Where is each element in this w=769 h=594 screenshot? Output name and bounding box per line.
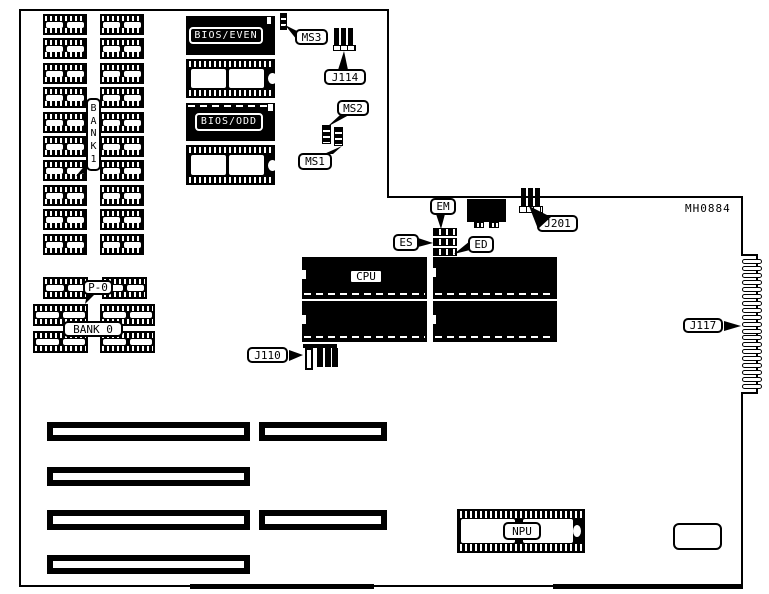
cpu-block-notch	[433, 268, 436, 277]
j114-pin	[334, 28, 339, 45]
chip-pins-top	[45, 114, 85, 119]
memory-chip	[100, 87, 144, 108]
memory-chip	[100, 185, 144, 206]
chip-pins-bottom	[102, 101, 142, 106]
chip-pins-top	[45, 279, 86, 284]
chip-window	[46, 285, 64, 291]
chip-pins-top	[102, 89, 142, 94]
expansion-slot	[259, 422, 387, 441]
chip-pins-top	[102, 16, 142, 21]
memory-chip	[100, 14, 144, 35]
chip-pins-top	[102, 138, 142, 143]
chip-window	[46, 22, 63, 28]
edge-connector-finger	[742, 273, 762, 278]
chip-window	[46, 193, 63, 199]
socket-pins-bottom	[189, 177, 272, 183]
memory-chip	[100, 63, 144, 84]
bottom-edge-thick-right	[553, 584, 743, 589]
edge-connector-finger	[742, 315, 762, 320]
j114-pin	[341, 28, 346, 45]
memory-chip	[100, 38, 144, 59]
chip-window	[46, 120, 63, 126]
bios-even-chip: BIOS/EVEN	[186, 16, 275, 55]
memory-chip	[43, 112, 87, 133]
chip-pins-top	[102, 40, 142, 45]
chip-index-mark	[267, 17, 271, 24]
memory-chip	[100, 160, 144, 181]
memory-chip	[43, 14, 87, 35]
bank1-letter: K	[90, 142, 96, 152]
chip-window	[63, 339, 86, 345]
chip-window	[124, 144, 141, 150]
chip-pins-top	[102, 162, 142, 167]
socket-pins-top	[460, 511, 582, 518]
chip-pins-bottom	[102, 174, 142, 179]
edge-connector-finger	[742, 301, 762, 306]
cpu-block-dashes	[435, 293, 555, 295]
chip-window	[46, 46, 63, 52]
chip-window	[46, 168, 63, 174]
memory-chip	[43, 38, 87, 59]
socket-pins-top	[189, 147, 272, 153]
chip-pins-bottom	[45, 174, 85, 179]
j110-pin	[332, 348, 338, 367]
j201-pin	[528, 188, 533, 206]
j110-callout: J110	[247, 347, 288, 363]
cpu-block-dashes	[304, 336, 425, 338]
edge-connector-finger	[742, 322, 762, 327]
memory-chip	[43, 160, 87, 181]
chip-window	[36, 339, 59, 345]
chip-pins-bottom	[45, 199, 85, 204]
bios-odd-label: BIOS/ODD	[195, 113, 263, 131]
chip-pins-bottom	[45, 223, 85, 228]
j110-pin	[325, 348, 331, 367]
edge-connector-finger	[742, 280, 762, 285]
em-jumper-row	[433, 248, 457, 256]
cpu-block-notch	[302, 315, 306, 324]
chip-pins-top	[102, 211, 142, 216]
chip-pins-top	[45, 187, 85, 192]
cpu-block-dashes	[435, 336, 555, 338]
chip-pins-top	[102, 187, 142, 192]
chip-index-mark	[268, 104, 273, 111]
socket-window	[191, 155, 226, 175]
expansion-slot	[47, 422, 250, 441]
edge-connector-finger	[742, 308, 762, 313]
motherboard-diagram: BIOS/EVEN BIOS/ODD MS3 J114 MS2 MS1 BANK…	[0, 0, 769, 594]
ms2-jumper-block	[322, 125, 331, 144]
chip-window	[103, 217, 120, 223]
power-connector-foot	[489, 222, 499, 228]
chip-window	[67, 71, 84, 77]
bottom-edge-thick-left	[190, 584, 374, 589]
chip-pins-top	[45, 89, 85, 94]
edge-connector-finger	[742, 363, 762, 368]
edge-connector-finger	[742, 287, 762, 292]
memory-chip	[100, 209, 144, 230]
chip-window	[124, 217, 141, 223]
chip-window	[103, 312, 126, 318]
memory-chip	[43, 136, 87, 157]
p0-callout: P-0	[83, 280, 113, 295]
memory-chip	[100, 234, 144, 255]
cpu-block-notch	[433, 315, 436, 324]
chip-window	[46, 71, 63, 77]
bank1-letter: B	[90, 104, 96, 114]
chip-pins-top	[102, 306, 153, 311]
chip-pins-bottom	[45, 52, 85, 57]
cpu-block-dashes	[304, 293, 425, 295]
chip-window	[67, 168, 84, 174]
chip-window	[130, 339, 153, 345]
chip-window	[124, 95, 141, 101]
chip-window	[67, 95, 84, 101]
chip-window	[124, 168, 141, 174]
chip-pins-bottom	[102, 126, 142, 131]
socket-pins-top	[189, 61, 272, 67]
socket-notch	[268, 73, 277, 84]
chip-window	[124, 242, 141, 248]
edge-connector-finger	[742, 259, 762, 264]
chip-pins-bottom	[45, 292, 86, 297]
edge-connector-finger	[742, 266, 762, 271]
memory-chip	[43, 234, 87, 255]
ms2-callout: MS2	[337, 100, 369, 116]
chip-pins-bottom	[35, 346, 86, 351]
chip-pins-top	[45, 16, 85, 21]
memory-chip	[43, 277, 88, 299]
chip-window	[63, 312, 86, 318]
chip-pins-bottom	[102, 199, 142, 204]
chip-pins-top	[102, 236, 142, 241]
bank0-callout: BANK 0	[63, 321, 123, 337]
cpu-callout: CPU	[349, 269, 383, 284]
chip-pins-bottom	[45, 126, 85, 131]
memory-chip	[100, 112, 144, 133]
chip-pins-top	[45, 211, 85, 216]
j110-pin	[317, 348, 323, 367]
chip-window	[67, 46, 84, 52]
es-callout: ES	[393, 234, 419, 251]
socket-pins-bottom	[460, 544, 582, 551]
chip-pins-top	[102, 114, 142, 119]
chip-window	[46, 95, 63, 101]
cpu-block	[433, 257, 557, 299]
oscillator-part	[673, 523, 722, 550]
edge-connector-finger	[742, 342, 762, 347]
cpu-block-notch	[302, 270, 306, 279]
chip-window	[103, 120, 120, 126]
bank1-letter: 1	[90, 155, 96, 165]
chip-pins-top	[45, 236, 85, 241]
chip-window	[103, 22, 120, 28]
chip-pins-bottom	[45, 101, 85, 106]
chip-window	[67, 217, 84, 223]
expansion-slot	[47, 555, 250, 574]
chip-window	[67, 120, 84, 126]
j114-pin	[348, 28, 353, 45]
chip-pins-bottom	[102, 77, 142, 82]
chip-window	[124, 71, 141, 77]
j114-callout: J114	[324, 69, 366, 85]
chip-pins-bottom	[102, 28, 142, 33]
ms3-jumper-block	[280, 13, 287, 30]
socket-window	[191, 69, 226, 88]
chip-window	[67, 144, 84, 150]
bios-odd-chip: BIOS/ODD	[186, 103, 275, 141]
chip-pins-top	[45, 65, 85, 70]
chip-pins-bottom	[102, 346, 153, 351]
chip-top-dashes	[188, 105, 273, 107]
chip-window	[46, 217, 63, 223]
chip-window	[46, 144, 63, 150]
socket-window	[229, 69, 264, 88]
edge-connector-finger	[742, 294, 762, 299]
chip-pins-bottom	[45, 150, 85, 155]
edge-connector-finger	[742, 377, 762, 382]
cpu-block	[302, 301, 427, 342]
edge-connector-finger	[742, 349, 762, 354]
em-jumper-row	[433, 238, 457, 246]
chip-pins-bottom	[102, 150, 142, 155]
memory-chip	[43, 87, 87, 108]
chip-pins-top	[45, 40, 85, 45]
chip-window	[103, 144, 120, 150]
socket-notch	[268, 160, 277, 171]
power-connector	[467, 199, 506, 222]
chip-window	[124, 193, 141, 199]
edge-connector-finger	[742, 356, 762, 361]
chip-window	[124, 22, 141, 28]
expansion-slot	[47, 510, 250, 530]
chip-window	[67, 22, 84, 28]
bank1-callout: BANK1	[86, 98, 101, 171]
chip-window	[103, 71, 120, 77]
socket-pins-bottom	[189, 90, 272, 96]
chip-window	[103, 193, 120, 199]
ms1-callout: MS1	[298, 153, 332, 170]
chip-pins-bottom	[102, 248, 142, 253]
edge-connector-finger	[742, 329, 762, 334]
j201-callout: J201	[537, 215, 578, 232]
chip-window	[103, 242, 120, 248]
memory-chip	[43, 185, 87, 206]
chip-window	[124, 46, 141, 52]
chip-window	[130, 312, 153, 318]
expansion-slot	[259, 510, 387, 530]
memory-chip	[43, 209, 87, 230]
edge-connector-finger	[742, 384, 762, 389]
bank1-letter: N	[90, 129, 96, 139]
power-connector-foot	[474, 222, 484, 228]
memory-chip	[43, 63, 87, 84]
chip-window	[103, 46, 120, 52]
chip-window	[67, 242, 84, 248]
chip-pins-top	[35, 306, 86, 311]
cpu-block	[433, 301, 557, 342]
socket-notch	[573, 525, 581, 537]
chip-window	[103, 95, 120, 101]
chip-pins-top	[102, 65, 142, 70]
j110-pin-white	[305, 348, 313, 370]
chip-window	[67, 193, 84, 199]
socket-window	[229, 155, 264, 175]
chip-window	[46, 242, 63, 248]
chip-window	[124, 120, 141, 126]
chip-window	[103, 168, 120, 174]
em-callout: EM	[430, 198, 456, 215]
j117-callout: J117	[683, 318, 723, 333]
chip-window	[127, 285, 145, 291]
bios-even-label: BIOS/EVEN	[189, 27, 263, 44]
edge-connector-finger	[742, 335, 762, 340]
expansion-slot	[47, 467, 250, 486]
chip-pins-bottom	[102, 52, 142, 57]
chip-pins-bottom	[102, 223, 142, 228]
chip-pins-top	[45, 162, 85, 167]
bios-odd-socket	[186, 145, 275, 185]
bank1-letter: A	[90, 117, 96, 127]
ms1-jumper-block	[334, 127, 343, 146]
chip-pins-bottom	[45, 77, 85, 82]
chip-pins-top	[45, 138, 85, 143]
board-part-code: MH0884	[685, 202, 731, 215]
chip-window	[36, 312, 59, 318]
edge-connector-finger	[742, 370, 762, 375]
j201-pin	[521, 188, 526, 206]
memory-chip	[100, 136, 144, 157]
npu-callout: NPU	[503, 522, 541, 540]
chip-window	[103, 339, 126, 345]
chip-pins-bottom	[45, 28, 85, 33]
chip-pins-bottom	[45, 248, 85, 253]
ed-callout: ED	[468, 236, 494, 253]
ms3-callout: MS3	[295, 29, 328, 45]
j201-pin	[535, 188, 540, 206]
bios-even-socket	[186, 59, 275, 98]
em-jumper-row	[433, 228, 457, 236]
j114-connector-base	[333, 45, 356, 51]
j201-connector-base	[519, 206, 543, 213]
